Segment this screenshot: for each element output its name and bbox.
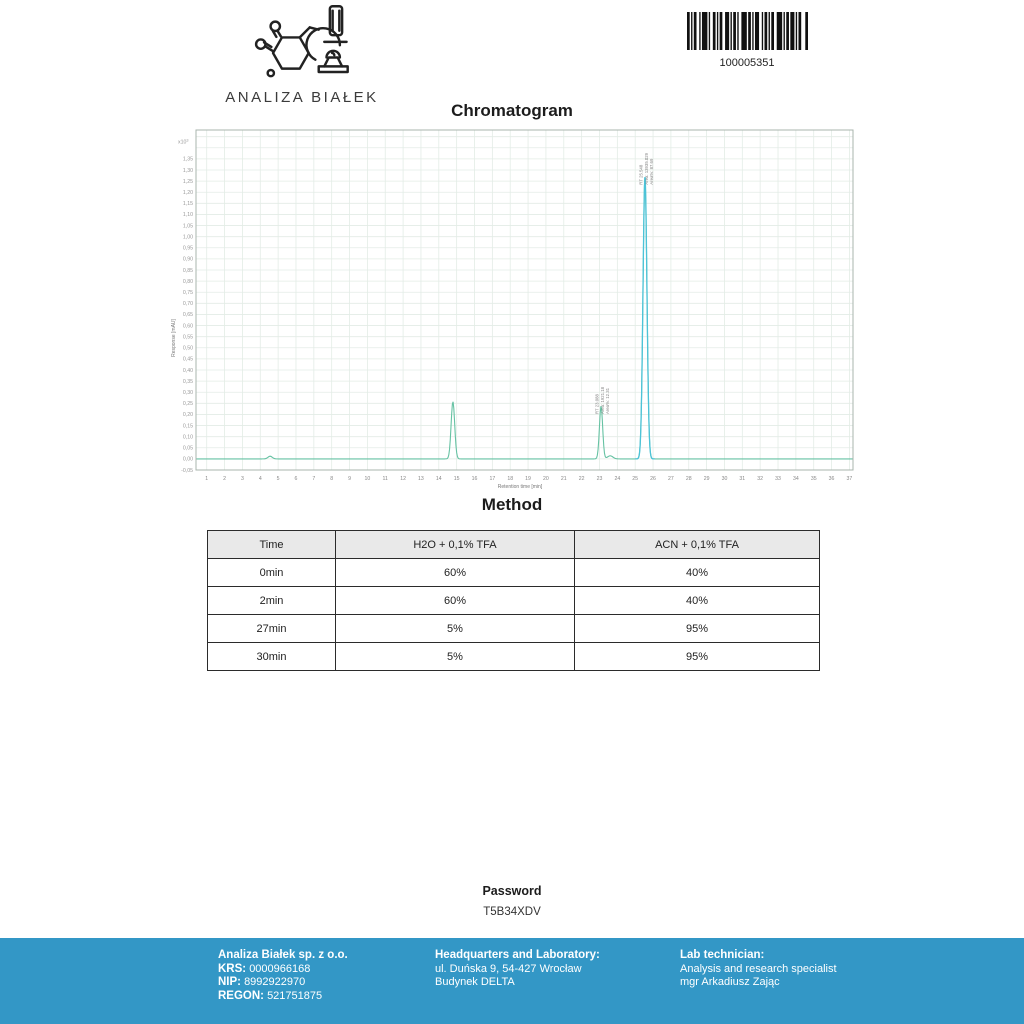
method-col-header: Time (208, 531, 336, 559)
svg-text:0,80: 0,80 (183, 279, 193, 285)
svg-text:33: 33 (775, 476, 781, 482)
method-cell: 95% (575, 615, 820, 643)
method-col-header: H2O + 0,1% TFA (336, 531, 575, 559)
y-axis-title: Response [mAU] (171, 318, 177, 356)
svg-text:3: 3 (241, 476, 244, 482)
svg-text:1,15: 1,15 (183, 201, 193, 207)
hq-address-line2: Budynek DELTA (435, 976, 600, 990)
barcode-block: 100005351 (672, 12, 822, 69)
footer-bar: Analiza Białek sp. z o.o. KRS: 000096616… (0, 938, 1024, 1024)
method-table-row: 0min60%40% (208, 559, 820, 587)
svg-text:1,20: 1,20 (183, 190, 193, 196)
svg-text:36: 36 (829, 476, 835, 482)
svg-text:37: 37 (847, 476, 853, 482)
svg-text:0,15: 0,15 (183, 423, 193, 429)
password-block: Password T5B34XDV (0, 884, 1024, 918)
method-table-header: TimeH2O + 0,1% TFAACN + 0,1% TFA (208, 531, 820, 559)
svg-text:32: 32 (757, 476, 763, 482)
footer-technician-info: Lab technician: Analysis and research sp… (680, 949, 837, 990)
svg-text:21: 21 (561, 476, 567, 482)
svg-text:1,00: 1,00 (183, 234, 193, 240)
method-table-row: 27min5%95% (208, 615, 820, 643)
svg-text:-0,05: -0,05 (181, 468, 193, 474)
footer-company-info: Analiza Białek sp. z o.o. KRS: 000096616… (218, 949, 348, 1003)
svg-text:29: 29 (704, 476, 710, 482)
nip-value: 8992922970 (244, 976, 305, 988)
svg-text:35: 35 (811, 476, 817, 482)
nip-label: NIP: (218, 976, 241, 988)
method-cell: 30min (208, 643, 336, 671)
svg-text:0,30: 0,30 (183, 390, 193, 396)
peak-annotation: Area%: 12.31 (605, 387, 610, 414)
svg-text:28: 28 (686, 476, 692, 482)
svg-text:6: 6 (295, 476, 298, 482)
method-cell: 0min (208, 559, 336, 587)
svg-text:0,45: 0,45 (183, 357, 193, 363)
svg-text:1,25: 1,25 (183, 179, 193, 185)
peak-annotation: RT 25.548 (639, 164, 644, 185)
chromatogram-heading: Chromatogram (0, 101, 1024, 121)
svg-text:4: 4 (259, 476, 262, 482)
company-name: Analiza Białek sp. z o.o. (218, 949, 348, 963)
svg-text:24: 24 (614, 476, 620, 482)
method-cell: 40% (575, 587, 820, 615)
svg-text:16: 16 (472, 476, 478, 482)
svg-text:0,25: 0,25 (183, 401, 193, 407)
method-col-header: ACN + 0,1% TFA (575, 531, 820, 559)
peak-annotation: Area: 1921.18 (600, 386, 605, 414)
svg-text:0,60: 0,60 (183, 323, 193, 329)
svg-text:27: 27 (668, 476, 674, 482)
method-cell: 5% (336, 615, 575, 643)
method-cell: 60% (336, 559, 575, 587)
technician-line1: Analysis and research specialist (680, 963, 837, 977)
svg-text:0,55: 0,55 (183, 334, 193, 340)
svg-text:0,70: 0,70 (183, 301, 193, 307)
svg-text:31: 31 (739, 476, 745, 482)
barcode-number: 100005351 (672, 57, 822, 69)
svg-text:14: 14 (436, 476, 442, 482)
svg-text:19: 19 (525, 476, 531, 482)
method-heading: Method (0, 495, 1024, 515)
svg-text:0,00: 0,00 (183, 457, 193, 463)
method-table: TimeH2O + 0,1% TFAACN + 0,1% TFA 0min60%… (207, 530, 819, 671)
method-table-row: 2min60%40% (208, 587, 820, 615)
svg-text:17: 17 (489, 476, 495, 482)
svg-text:18: 18 (507, 476, 513, 482)
method-cell: 2min (208, 587, 336, 615)
svg-text:23: 23 (597, 476, 603, 482)
svg-text:8: 8 (330, 476, 333, 482)
molecule-microscope-icon (247, 4, 357, 82)
barcode-icon (687, 12, 808, 50)
logo-block: ANALIZA BIAŁEK (222, 4, 382, 106)
chromatogram-chart: RT 23.088Area: 1921.18Area%: 12.31RT 25.… (168, 126, 860, 494)
svg-text:10: 10 (365, 476, 371, 482)
password-value: T5B34XDV (0, 906, 1024, 918)
hq-title: Headquarters and Laboratory: (435, 949, 600, 963)
svg-text:x103: x103 (178, 139, 189, 146)
svg-text:15: 15 (454, 476, 460, 482)
svg-text:12: 12 (400, 476, 406, 482)
krs-value: 0000966168 (249, 963, 310, 975)
krs-label: KRS: (218, 963, 246, 975)
svg-text:30: 30 (722, 476, 728, 482)
hq-address-line1: ul. Duńska 9, 54-427 Wrocław (435, 963, 600, 977)
svg-text:5: 5 (277, 476, 280, 482)
svg-text:2: 2 (223, 476, 226, 482)
method-cell: 60% (336, 587, 575, 615)
svg-text:26: 26 (650, 476, 656, 482)
svg-text:0,75: 0,75 (183, 290, 193, 296)
svg-text:25: 25 (632, 476, 638, 482)
password-label: Password (0, 884, 1024, 898)
svg-text:34: 34 (793, 476, 799, 482)
method-cell: 40% (575, 559, 820, 587)
svg-text:0,65: 0,65 (183, 312, 193, 318)
svg-text:0,05: 0,05 (183, 446, 193, 452)
svg-text:0,90: 0,90 (183, 257, 193, 263)
method-cell: 5% (336, 643, 575, 671)
svg-text:9: 9 (348, 476, 351, 482)
regon-label: REGON: (218, 990, 264, 1002)
regon-value: 521751875 (267, 990, 322, 1002)
svg-text:0,20: 0,20 (183, 412, 193, 418)
x-axis-title: Retention time [min] (498, 484, 543, 490)
technician-title: Lab technician: (680, 949, 837, 963)
method-table-row: 30min5%95% (208, 643, 820, 671)
lab-report-page: { "logo": { "title": "ANALIZA BIAŁEK" },… (0, 0, 1024, 1024)
peak-annotation: RT 23.088 (595, 393, 600, 414)
technician-line2: mgr Arkadiusz Zając (680, 976, 837, 990)
svg-text:0,10: 0,10 (183, 434, 193, 440)
svg-text:11: 11 (383, 476, 388, 482)
svg-text:0,85: 0,85 (183, 268, 193, 274)
svg-text:7: 7 (312, 476, 315, 482)
svg-text:1,10: 1,10 (183, 212, 193, 218)
svg-text:1: 1 (205, 476, 208, 482)
svg-text:20: 20 (543, 476, 549, 482)
svg-text:13: 13 (418, 476, 424, 482)
peak-annotation: Area: 13935.029 (644, 152, 649, 184)
svg-text:0,40: 0,40 (183, 368, 193, 374)
svg-text:0,95: 0,95 (183, 246, 193, 252)
svg-text:0,35: 0,35 (183, 379, 193, 385)
svg-text:1,35: 1,35 (183, 157, 193, 163)
svg-text:1,05: 1,05 (183, 223, 193, 229)
peak-annotation: Area%: 87.69 (649, 158, 654, 185)
footer-hq-info: Headquarters and Laboratory: ul. Duńska … (435, 949, 600, 990)
svg-text:1,30: 1,30 (183, 168, 193, 174)
method-cell: 27min (208, 615, 336, 643)
svg-text:22: 22 (579, 476, 585, 482)
svg-text:0,50: 0,50 (183, 346, 193, 352)
method-cell: 95% (575, 643, 820, 671)
